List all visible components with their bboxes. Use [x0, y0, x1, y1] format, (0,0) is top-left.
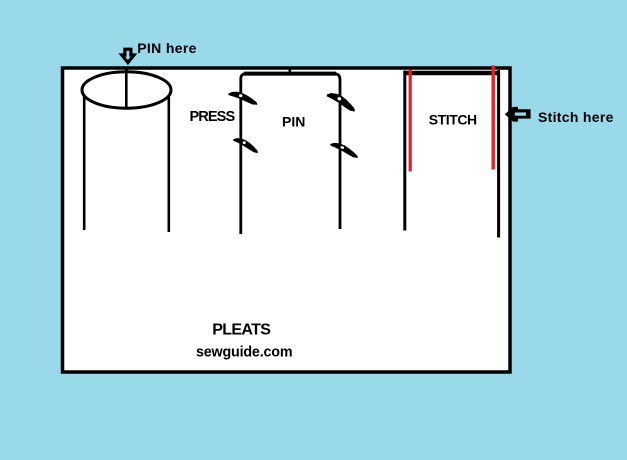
- svg-text:Stitch here: Stitch here: [538, 109, 614, 125]
- svg-text:PIN here: PIN here: [137, 40, 197, 56]
- svg-text:PIN: PIN: [282, 114, 305, 130]
- svg-text:STITCH: STITCH: [429, 112, 477, 128]
- svg-text:sewguide.com: sewguide.com: [196, 344, 292, 360]
- svg-text:PRESS: PRESS: [190, 109, 236, 125]
- svg-text:PLEATS: PLEATS: [212, 321, 271, 338]
